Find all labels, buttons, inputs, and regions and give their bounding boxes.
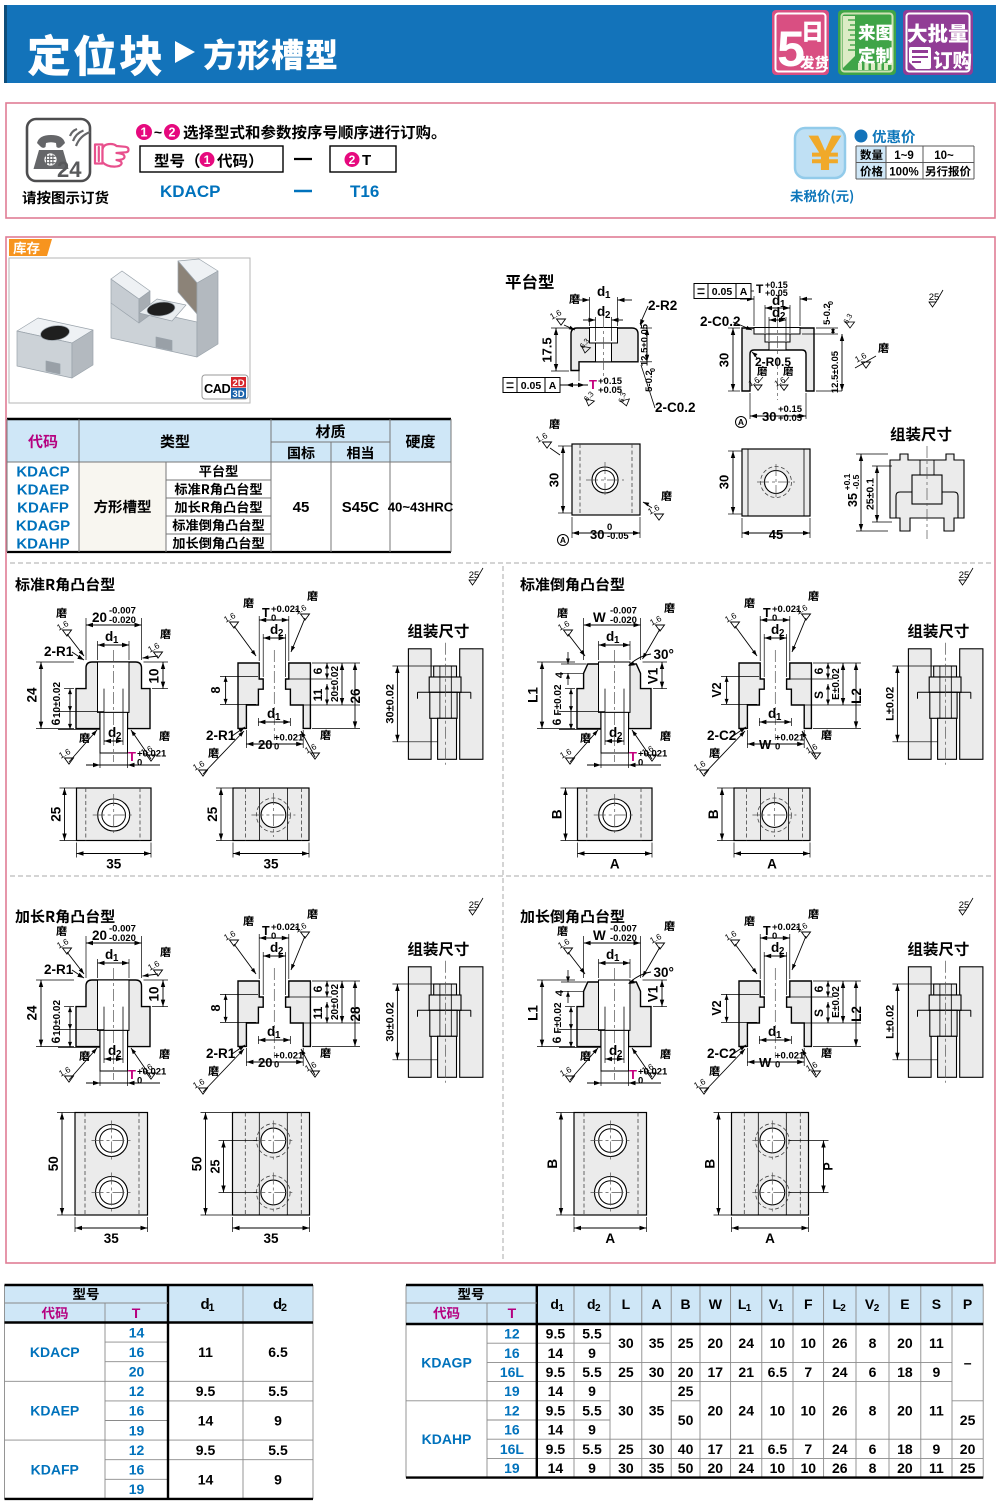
svg-text:0: 0 bbox=[274, 1060, 279, 1071]
svg-text:4: 4 bbox=[554, 989, 566, 996]
svg-text:20: 20 bbox=[92, 610, 107, 625]
svg-text:S: S bbox=[812, 691, 826, 699]
svg-text:5.5: 5.5 bbox=[582, 1402, 602, 1418]
svg-text:30: 30 bbox=[590, 527, 604, 542]
svg-text:25: 25 bbox=[959, 900, 970, 911]
svg-text:10: 10 bbox=[801, 1335, 817, 1351]
svg-text:B: B bbox=[550, 809, 565, 819]
svg-text:10: 10 bbox=[147, 668, 162, 683]
svg-text:KDAEP: KDAEP bbox=[30, 1403, 79, 1419]
svg-text:2: 2 bbox=[617, 1049, 623, 1060]
svg-text:T: T bbox=[128, 1067, 136, 1082]
svg-text:1: 1 bbox=[776, 1030, 782, 1041]
svg-text:E±0.02: E±0.02 bbox=[831, 668, 842, 700]
svg-text:T: T bbox=[763, 924, 771, 938]
svg-text:25: 25 bbox=[49, 806, 64, 822]
svg-text:T16: T16 bbox=[350, 182, 379, 201]
svg-text:9: 9 bbox=[588, 1383, 596, 1399]
svg-text:6: 6 bbox=[311, 985, 325, 992]
svg-text:6.5: 6.5 bbox=[268, 1344, 288, 1360]
svg-text:d: d bbox=[597, 304, 605, 319]
svg-text:20: 20 bbox=[897, 1402, 913, 1418]
svg-text:T: T bbox=[262, 606, 270, 620]
svg-text:1: 1 bbox=[204, 153, 211, 167]
svg-text:W: W bbox=[759, 1055, 772, 1070]
svg-text:14: 14 bbox=[198, 1413, 214, 1429]
svg-text:25: 25 bbox=[205, 806, 220, 822]
svg-text:KDAHP: KDAHP bbox=[16, 536, 69, 553]
svg-text:2-R1: 2-R1 bbox=[206, 1046, 236, 1061]
svg-text:16: 16 bbox=[504, 1345, 520, 1361]
svg-text:KDAGP: KDAGP bbox=[421, 1354, 472, 1370]
svg-text:d: d bbox=[606, 947, 614, 962]
svg-text:d: d bbox=[270, 622, 278, 637]
svg-text:20: 20 bbox=[258, 737, 272, 752]
svg-text:d: d bbox=[105, 947, 113, 962]
svg-text:F±0.02: F±0.02 bbox=[553, 684, 564, 715]
svg-text:19: 19 bbox=[129, 1481, 145, 1497]
svg-text:1: 1 bbox=[113, 953, 119, 964]
svg-text:2D: 2D bbox=[232, 378, 244, 389]
svg-text:20: 20 bbox=[897, 1335, 913, 1351]
svg-text:16L: 16L bbox=[500, 1441, 525, 1457]
svg-text:0: 0 bbox=[775, 1060, 780, 1071]
svg-text:9.5: 9.5 bbox=[546, 1326, 566, 1342]
svg-text:-0.020: -0.020 bbox=[610, 615, 637, 626]
svg-text:1: 1 bbox=[275, 712, 281, 723]
svg-text:A: A bbox=[651, 1296, 661, 1312]
svg-text:8: 8 bbox=[209, 1004, 223, 1011]
svg-text:1: 1 bbox=[275, 1030, 281, 1041]
svg-text:20: 20 bbox=[897, 1460, 913, 1476]
svg-text:30°: 30° bbox=[654, 965, 674, 980]
svg-text:35: 35 bbox=[106, 857, 122, 872]
svg-text:0: 0 bbox=[828, 301, 835, 305]
svg-text:1: 1 bbox=[605, 290, 611, 301]
svg-text:-0.05: -0.05 bbox=[607, 531, 629, 542]
svg-text:B: B bbox=[545, 1159, 560, 1169]
svg-text:5.5: 5.5 bbox=[268, 1383, 288, 1399]
svg-text:30: 30 bbox=[717, 353, 732, 367]
svg-text:1: 1 bbox=[113, 635, 119, 646]
svg-text:0: 0 bbox=[775, 742, 780, 753]
svg-text:A: A bbox=[740, 286, 748, 298]
svg-text:25: 25 bbox=[678, 1383, 694, 1399]
svg-text:30: 30 bbox=[618, 1335, 634, 1351]
svg-text:25: 25 bbox=[209, 1160, 223, 1174]
svg-text:8: 8 bbox=[869, 1460, 877, 1476]
svg-text:KDACP: KDACP bbox=[16, 464, 69, 481]
svg-text:12: 12 bbox=[504, 1402, 520, 1418]
svg-text:T: T bbox=[756, 282, 764, 296]
svg-text:2: 2 bbox=[281, 1302, 287, 1314]
svg-text:S45C: S45C bbox=[342, 499, 380, 516]
svg-text:0: 0 bbox=[638, 1076, 643, 1087]
svg-text:20: 20 bbox=[708, 1335, 724, 1351]
svg-text:0.05: 0.05 bbox=[521, 380, 542, 392]
svg-text:20: 20 bbox=[92, 928, 107, 943]
svg-text:20±0.02: 20±0.02 bbox=[330, 984, 341, 1021]
svg-text:T: T bbox=[629, 1067, 637, 1082]
svg-text:L1: L1 bbox=[526, 1005, 541, 1021]
svg-text:F: F bbox=[804, 1296, 813, 1312]
svg-text:L±0.02: L±0.02 bbox=[884, 1005, 896, 1039]
svg-text:6: 6 bbox=[812, 667, 826, 674]
svg-text:10: 10 bbox=[801, 1460, 817, 1476]
svg-text:+0.05: +0.05 bbox=[778, 413, 803, 424]
svg-text:5.5: 5.5 bbox=[582, 1364, 602, 1380]
svg-text:d: d bbox=[108, 725, 116, 740]
svg-text:30°: 30° bbox=[654, 647, 674, 662]
svg-text:12: 12 bbox=[504, 1326, 520, 1342]
svg-text:d: d bbox=[768, 1024, 776, 1039]
svg-text:2: 2 bbox=[840, 1303, 846, 1314]
svg-text:19: 19 bbox=[129, 1422, 145, 1438]
svg-text:2: 2 bbox=[780, 311, 786, 322]
svg-text:-0.020: -0.020 bbox=[109, 615, 136, 626]
svg-text:9: 9 bbox=[274, 1471, 282, 1487]
svg-text:40~43HRC: 40~43HRC bbox=[388, 500, 454, 515]
svg-text:20±0.02: 20±0.02 bbox=[330, 666, 341, 703]
svg-text:A: A bbox=[549, 380, 557, 392]
svg-text:14: 14 bbox=[548, 1422, 564, 1438]
svg-text:26: 26 bbox=[832, 1460, 848, 1476]
svg-text:2-R1: 2-R1 bbox=[44, 962, 74, 977]
svg-text:11: 11 bbox=[929, 1402, 944, 1418]
svg-text:1: 1 bbox=[776, 712, 782, 723]
svg-text:2-C2: 2-C2 bbox=[707, 1046, 736, 1061]
svg-text:2: 2 bbox=[116, 731, 122, 742]
svg-text:16: 16 bbox=[129, 1462, 145, 1478]
svg-text:9: 9 bbox=[588, 1422, 596, 1438]
svg-text:35: 35 bbox=[649, 1402, 665, 1418]
svg-text:S: S bbox=[932, 1296, 941, 1312]
svg-text:28: 28 bbox=[348, 1006, 363, 1022]
svg-text:30: 30 bbox=[717, 475, 732, 489]
svg-text:d: d bbox=[606, 629, 614, 644]
svg-text:2-R1: 2-R1 bbox=[44, 644, 74, 659]
svg-text:9: 9 bbox=[588, 1460, 596, 1476]
svg-text:26: 26 bbox=[348, 688, 363, 704]
svg-text:30±0.02: 30±0.02 bbox=[384, 684, 396, 724]
svg-text:2: 2 bbox=[278, 946, 284, 957]
svg-text:10~: 10~ bbox=[934, 150, 954, 162]
svg-text:14: 14 bbox=[129, 1324, 145, 1340]
svg-text:d: d bbox=[270, 940, 278, 955]
svg-text:A: A bbox=[767, 857, 777, 872]
svg-text:1: 1 bbox=[141, 126, 148, 140]
svg-text:d: d bbox=[267, 1024, 275, 1039]
svg-text:9.5: 9.5 bbox=[196, 1442, 216, 1458]
svg-text:35: 35 bbox=[649, 1460, 665, 1476]
svg-text:12.5±0.05: 12.5±0.05 bbox=[640, 323, 651, 366]
svg-text:20: 20 bbox=[708, 1460, 724, 1476]
svg-text:d: d bbox=[771, 622, 779, 637]
svg-text:50: 50 bbox=[46, 1156, 61, 1171]
svg-text:L1: L1 bbox=[526, 687, 541, 703]
svg-text:50: 50 bbox=[678, 1460, 694, 1476]
svg-text:V1: V1 bbox=[646, 985, 661, 1002]
svg-text:8: 8 bbox=[209, 686, 223, 693]
svg-text:24: 24 bbox=[738, 1402, 754, 1418]
svg-text:F±0.02: F±0.02 bbox=[553, 1002, 564, 1033]
svg-text:E: E bbox=[900, 1296, 909, 1312]
svg-text:19: 19 bbox=[504, 1383, 520, 1399]
svg-text:A: A bbox=[765, 1231, 775, 1246]
svg-text:6: 6 bbox=[49, 718, 63, 725]
svg-text:0: 0 bbox=[137, 758, 142, 769]
svg-text:24: 24 bbox=[832, 1441, 848, 1457]
svg-text:40: 40 bbox=[678, 1441, 694, 1457]
svg-text:W: W bbox=[759, 737, 772, 752]
svg-text:5.5: 5.5 bbox=[582, 1441, 602, 1457]
svg-text:25: 25 bbox=[618, 1364, 634, 1380]
svg-text:2: 2 bbox=[278, 628, 284, 639]
svg-text:100%: 100% bbox=[889, 167, 918, 179]
svg-text:1: 1 bbox=[780, 299, 786, 310]
svg-text:2: 2 bbox=[617, 731, 623, 742]
svg-text:21: 21 bbox=[738, 1441, 754, 1457]
svg-text:20: 20 bbox=[678, 1364, 694, 1380]
svg-text:16L: 16L bbox=[500, 1364, 525, 1380]
svg-text:T: T bbox=[629, 749, 637, 764]
svg-text:4: 4 bbox=[554, 671, 566, 678]
svg-text:11: 11 bbox=[311, 688, 325, 701]
svg-text:B: B bbox=[703, 1159, 718, 1169]
svg-text:35: 35 bbox=[263, 857, 279, 872]
svg-text:30: 30 bbox=[618, 1402, 634, 1418]
svg-text:B: B bbox=[706, 809, 721, 819]
svg-text:d: d bbox=[597, 284, 605, 299]
svg-text:25: 25 bbox=[678, 1335, 694, 1351]
svg-text:10: 10 bbox=[770, 1460, 786, 1476]
svg-text:T: T bbox=[763, 606, 771, 620]
svg-text:6: 6 bbox=[550, 718, 564, 725]
svg-text:9: 9 bbox=[588, 1345, 596, 1361]
svg-text:25: 25 bbox=[960, 1412, 976, 1428]
svg-text:0: 0 bbox=[274, 742, 279, 753]
svg-text:–: – bbox=[964, 1354, 972, 1370]
svg-text:1: 1 bbox=[614, 953, 620, 964]
svg-text:A: A bbox=[738, 417, 744, 427]
svg-text:16: 16 bbox=[504, 1422, 520, 1438]
svg-text:1: 1 bbox=[558, 1303, 564, 1314]
svg-text:17: 17 bbox=[708, 1441, 724, 1457]
svg-text:5: 5 bbox=[777, 21, 805, 77]
svg-text:1: 1 bbox=[778, 1303, 784, 1314]
svg-text:L2: L2 bbox=[849, 1006, 864, 1022]
svg-text:24: 24 bbox=[738, 1335, 754, 1351]
svg-text:5-0.2: 5-0.2 bbox=[644, 370, 655, 392]
svg-text:35: 35 bbox=[263, 1231, 279, 1246]
svg-text:30: 30 bbox=[649, 1364, 665, 1380]
svg-text:11: 11 bbox=[929, 1335, 944, 1351]
svg-text:26: 26 bbox=[832, 1335, 848, 1351]
svg-text:A: A bbox=[560, 535, 566, 545]
svg-text:T: T bbox=[508, 1305, 517, 1321]
svg-text:d: d bbox=[771, 940, 779, 955]
svg-text:11: 11 bbox=[311, 1006, 325, 1019]
svg-text:24: 24 bbox=[832, 1364, 848, 1380]
svg-text:P: P bbox=[963, 1296, 972, 1312]
svg-text:50: 50 bbox=[678, 1412, 694, 1428]
svg-text:9: 9 bbox=[274, 1413, 282, 1429]
svg-text:25±0.1: 25±0.1 bbox=[865, 478, 877, 510]
svg-text:0: 0 bbox=[137, 1076, 142, 1087]
svg-text:12: 12 bbox=[129, 1442, 145, 1458]
svg-text:T: T bbox=[262, 924, 270, 938]
svg-text:35: 35 bbox=[649, 1335, 665, 1351]
svg-text:16: 16 bbox=[129, 1403, 145, 1419]
svg-text:V2: V2 bbox=[710, 682, 724, 697]
svg-text:11: 11 bbox=[198, 1344, 213, 1360]
svg-text:1: 1 bbox=[614, 635, 620, 646]
svg-text:T: T bbox=[362, 152, 371, 169]
svg-text:6: 6 bbox=[869, 1364, 877, 1380]
svg-text:17.5: 17.5 bbox=[540, 337, 555, 362]
svg-text:KDAFP: KDAFP bbox=[31, 1462, 79, 1478]
svg-text:KDACP: KDACP bbox=[30, 1344, 80, 1360]
svg-text:KDAFP: KDAFP bbox=[17, 500, 69, 517]
svg-text:20: 20 bbox=[258, 1055, 272, 1070]
svg-text:25: 25 bbox=[469, 570, 480, 581]
svg-text:2-R0.5: 2-R0.5 bbox=[755, 355, 791, 369]
svg-text:24: 24 bbox=[738, 1460, 754, 1476]
svg-text:24: 24 bbox=[57, 157, 82, 182]
svg-text:d: d bbox=[772, 305, 780, 320]
svg-text:2: 2 bbox=[595, 1303, 601, 1314]
svg-text:0.05: 0.05 bbox=[712, 286, 733, 298]
svg-text:B: B bbox=[681, 1296, 691, 1312]
svg-text:9: 9 bbox=[933, 1364, 941, 1380]
svg-text:25: 25 bbox=[960, 1460, 976, 1476]
svg-text:3D: 3D bbox=[232, 389, 244, 400]
svg-text:V2: V2 bbox=[710, 1000, 724, 1015]
svg-text:2-C0.2: 2-C0.2 bbox=[700, 314, 741, 329]
svg-text:35: 35 bbox=[846, 493, 860, 507]
svg-text:d: d bbox=[768, 706, 776, 721]
svg-text:14: 14 bbox=[198, 1471, 214, 1487]
svg-text:1~9: 1~9 bbox=[894, 150, 914, 162]
svg-text:10: 10 bbox=[770, 1402, 786, 1418]
svg-text:W: W bbox=[593, 928, 606, 943]
svg-text:5-0.2: 5-0.2 bbox=[822, 303, 833, 325]
svg-text:20: 20 bbox=[960, 1441, 976, 1457]
svg-text:24: 24 bbox=[25, 1005, 40, 1021]
svg-text:24: 24 bbox=[25, 687, 40, 703]
svg-text:2-C0.2: 2-C0.2 bbox=[655, 400, 696, 415]
svg-text:14: 14 bbox=[548, 1460, 564, 1476]
svg-text:30: 30 bbox=[649, 1441, 665, 1457]
svg-text:14: 14 bbox=[548, 1383, 564, 1399]
svg-text:T: T bbox=[589, 377, 597, 392]
svg-text:2: 2 bbox=[605, 310, 611, 321]
svg-text:16: 16 bbox=[129, 1344, 145, 1360]
svg-text:W: W bbox=[709, 1296, 723, 1312]
svg-text:2-R2: 2-R2 bbox=[648, 298, 677, 313]
svg-text:6: 6 bbox=[812, 985, 826, 992]
svg-text:S: S bbox=[812, 1009, 826, 1017]
svg-text:KDACP: KDACP bbox=[160, 182, 220, 201]
svg-text:6.5: 6.5 bbox=[768, 1364, 788, 1380]
svg-text:9.5: 9.5 bbox=[546, 1364, 566, 1380]
svg-text:~: ~ bbox=[154, 124, 162, 140]
svg-text:6: 6 bbox=[311, 667, 325, 674]
svg-text:35: 35 bbox=[104, 1231, 120, 1246]
svg-text:2: 2 bbox=[169, 126, 176, 140]
svg-text:d: d bbox=[609, 725, 617, 740]
svg-text:20: 20 bbox=[129, 1364, 145, 1380]
svg-text:d: d bbox=[609, 1043, 617, 1058]
svg-text:d: d bbox=[108, 1043, 116, 1058]
svg-text:2: 2 bbox=[349, 153, 356, 167]
svg-text:10: 10 bbox=[147, 986, 162, 1001]
svg-text:12.5±0.05: 12.5±0.05 bbox=[830, 350, 841, 393]
svg-text:21: 21 bbox=[738, 1364, 754, 1380]
svg-text:-0.020: -0.020 bbox=[109, 933, 136, 944]
svg-text:30: 30 bbox=[762, 409, 776, 424]
svg-text:45: 45 bbox=[769, 527, 783, 542]
svg-text:KDAGP: KDAGP bbox=[16, 518, 70, 535]
svg-text:2: 2 bbox=[779, 628, 785, 639]
svg-text:5.5: 5.5 bbox=[582, 1326, 602, 1342]
svg-text:18: 18 bbox=[897, 1441, 913, 1457]
svg-text:8: 8 bbox=[869, 1402, 877, 1418]
svg-text:9: 9 bbox=[933, 1441, 941, 1457]
svg-text:-0.020: -0.020 bbox=[610, 933, 637, 944]
svg-text:19: 19 bbox=[504, 1460, 520, 1476]
svg-text:2-C2: 2-C2 bbox=[707, 728, 736, 743]
svg-text:30: 30 bbox=[547, 473, 562, 487]
svg-text:30: 30 bbox=[618, 1460, 634, 1476]
svg-text:W: W bbox=[593, 610, 606, 625]
svg-text:d: d bbox=[267, 706, 275, 721]
svg-text:2: 2 bbox=[116, 1049, 122, 1060]
svg-text:2: 2 bbox=[779, 946, 785, 957]
svg-text:d: d bbox=[105, 629, 113, 644]
svg-text:E±0.02: E±0.02 bbox=[831, 986, 842, 1018]
svg-text:6: 6 bbox=[869, 1441, 877, 1457]
svg-text:CAD: CAD bbox=[204, 381, 230, 396]
svg-text:A: A bbox=[605, 1231, 615, 1246]
svg-text:26: 26 bbox=[832, 1402, 848, 1418]
svg-text:10±0.02: 10±0.02 bbox=[52, 682, 63, 719]
svg-text:KDAEP: KDAEP bbox=[17, 482, 70, 499]
svg-text:12: 12 bbox=[129, 1383, 145, 1399]
svg-text:KDAHP: KDAHP bbox=[422, 1431, 472, 1447]
svg-text:7: 7 bbox=[804, 1441, 812, 1457]
svg-text:9.5: 9.5 bbox=[196, 1383, 216, 1399]
svg-text:0: 0 bbox=[638, 758, 643, 769]
svg-text:11: 11 bbox=[929, 1460, 944, 1476]
svg-text:L: L bbox=[622, 1296, 631, 1312]
svg-text:9.5: 9.5 bbox=[546, 1402, 566, 1418]
svg-text:17: 17 bbox=[708, 1364, 724, 1380]
svg-text:A: A bbox=[610, 857, 620, 872]
svg-text:10: 10 bbox=[770, 1335, 786, 1351]
svg-text:10: 10 bbox=[801, 1402, 817, 1418]
svg-text:25: 25 bbox=[469, 900, 480, 911]
svg-text:10±0.02: 10±0.02 bbox=[52, 1000, 63, 1037]
svg-text:7: 7 bbox=[804, 1364, 812, 1380]
svg-text:45: 45 bbox=[293, 499, 310, 516]
svg-text:0: 0 bbox=[650, 368, 657, 372]
svg-text:T: T bbox=[132, 1305, 141, 1321]
svg-text:2: 2 bbox=[874, 1303, 880, 1314]
svg-text:50: 50 bbox=[190, 1156, 205, 1171]
svg-text:9.5: 9.5 bbox=[546, 1441, 566, 1457]
svg-text:6: 6 bbox=[550, 1036, 564, 1043]
